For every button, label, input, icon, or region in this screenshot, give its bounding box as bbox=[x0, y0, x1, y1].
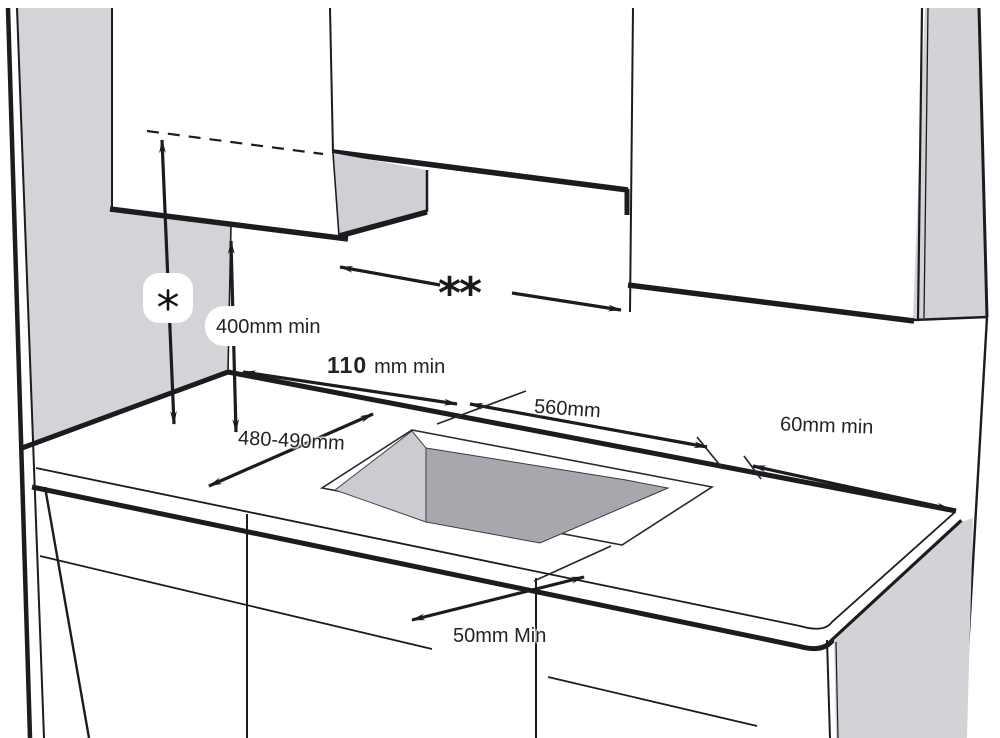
arrow-60mm bbox=[753, 466, 950, 509]
hob-installation-diagram: * 400mm min 110mm min 560mm 480-490mm 60… bbox=[0, 0, 1000, 738]
dim-label-110mm: 110mm min bbox=[327, 352, 445, 379]
drawer-line-left bbox=[40, 556, 432, 649]
double-asterisk-icon: ** bbox=[438, 268, 480, 319]
asterisk-icon: * bbox=[157, 281, 180, 335]
worktop-cutout bbox=[322, 430, 712, 545]
hood-recess bbox=[333, 152, 628, 236]
double-star-arrow-left bbox=[340, 267, 440, 285]
double-star-arrow-right bbox=[512, 293, 621, 310]
upper-left-cabinet bbox=[110, 8, 348, 239]
drawer-line-right bbox=[548, 677, 757, 726]
base-left-corner-edge bbox=[45, 487, 89, 738]
dim-unit-110: mm min bbox=[374, 356, 445, 378]
dim-label-560mm: 560mm bbox=[533, 396, 601, 424]
dim-label-400mm: 400mm min bbox=[216, 316, 320, 339]
star-note-badge: * bbox=[143, 273, 193, 323]
dim-label-50mm: 50mm Min bbox=[453, 625, 546, 648]
dim-value-110: 110 bbox=[327, 352, 367, 378]
recess-height-dashed-line bbox=[147, 131, 323, 154]
left-wall bbox=[8, 8, 231, 738]
dim-label-60mm: 60mm min bbox=[780, 413, 874, 439]
